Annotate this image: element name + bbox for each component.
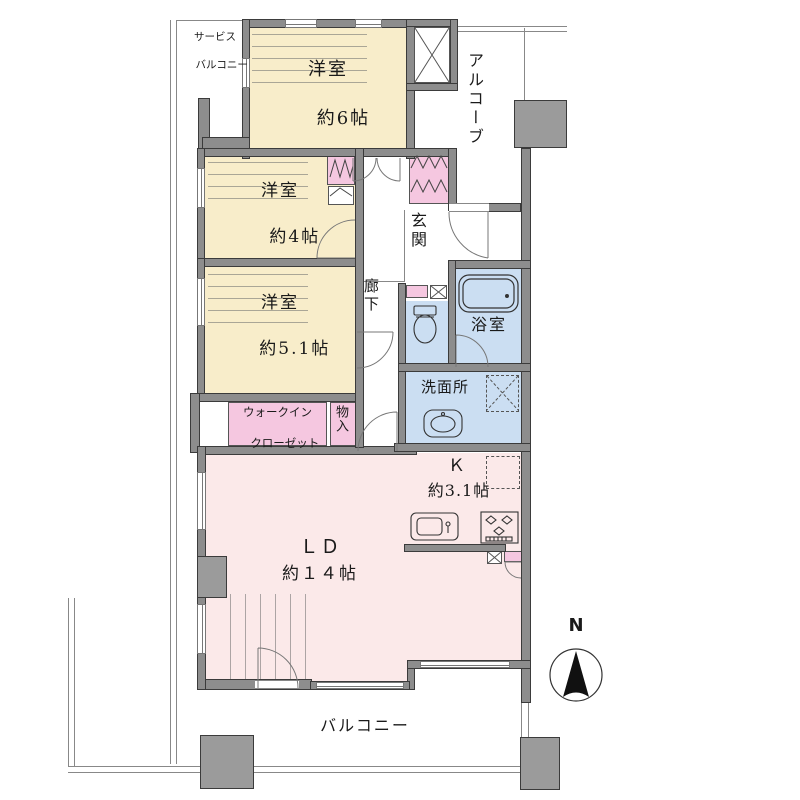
storage-label: 物入 [334, 405, 347, 433]
window [197, 472, 206, 530]
balcony-bottom-edge [68, 766, 560, 773]
wall [448, 260, 456, 367]
room-size: 約6帖 [317, 108, 370, 129]
alcove-top-line [450, 26, 567, 32]
window [420, 661, 510, 668]
wic-line2: クローゼット [250, 436, 319, 450]
wall [450, 19, 458, 91]
right-balcony-edge [521, 700, 529, 737]
entrance-label: 玄関 [409, 212, 425, 250]
window [197, 604, 206, 654]
wall [406, 83, 458, 91]
room-western51-label: 洋室 約5.1帖 [210, 292, 350, 361]
pipe-space-kitchen [487, 551, 502, 564]
alcove-right-line [524, 28, 525, 100]
corridor-label: 廊下 [363, 278, 378, 314]
room-western4-label: 洋室 約4帖 [210, 180, 350, 249]
hall-shelf [406, 285, 428, 298]
washroom-label: 洗面所 [406, 377, 484, 397]
room-western6-label: 洋室 約6帖 [258, 58, 398, 131]
alcove-label: アルコーブ [466, 52, 482, 147]
window [197, 278, 205, 326]
balcony-door-opening [255, 680, 299, 689]
wall [394, 443, 531, 452]
pillar [520, 737, 560, 790]
wall [197, 393, 362, 402]
entrance-step-line [404, 210, 405, 282]
kitchen-shelf [504, 551, 522, 562]
room-name: 洋室 [308, 59, 348, 80]
north-label: N [560, 614, 592, 638]
wall [197, 148, 457, 157]
window [285, 19, 317, 28]
elevator-shaft [414, 27, 450, 83]
wall [448, 148, 457, 211]
pillar [200, 735, 254, 789]
window [316, 682, 404, 689]
wic-line1: ウォークイン [243, 405, 312, 419]
compass-icon [550, 649, 602, 701]
toilet-room-floor [405, 301, 451, 367]
service-balcony-line2: バルコニー [196, 59, 248, 71]
entry-door-opening [449, 203, 489, 212]
wall [242, 19, 414, 28]
wall [521, 148, 531, 263]
room-name: 洋室 [261, 181, 299, 201]
service-balcony-line1: サービス [194, 31, 236, 43]
wall [190, 393, 200, 453]
window-hatch [230, 594, 310, 680]
room-size: 約4帖 [269, 227, 320, 247]
window [355, 19, 382, 28]
bathroom-label: 浴室 [458, 314, 520, 336]
wall [398, 363, 531, 372]
floor-plan: サービス バルコニー 洋室 約6帖 アルコーブ 洋室 約4帖 玄関 廊下 浴室 … [0, 0, 800, 800]
shoe-cabinet [409, 152, 450, 204]
wall [521, 263, 531, 703]
room-name: 洋室 [261, 293, 299, 313]
kitchen-name-label: Ｋ [435, 455, 480, 478]
ld-size-label: 約１４帖 [240, 563, 400, 586]
room-size: 約5.1帖 [259, 339, 330, 359]
wall [448, 260, 531, 269]
kitchen-counter-wall [404, 544, 506, 552]
service-balcony-label: サービス バルコニー [176, 30, 254, 73]
kitchen-size-label: 約3.1帖 [404, 480, 514, 502]
pillar [514, 100, 567, 148]
left-balcony-edge [170, 20, 177, 764]
window [197, 168, 205, 208]
balcony-left-edge [68, 598, 75, 768]
wall [197, 258, 362, 267]
balcony-label: バルコニー [300, 715, 430, 737]
wall [487, 203, 521, 212]
pillar [197, 556, 227, 598]
walk-in-closet-label: ウォークイン クローゼット [230, 405, 325, 452]
pipe-space-hall [430, 285, 447, 299]
washer-space [486, 375, 519, 412]
ld-name-label: ＬＤ [248, 535, 393, 561]
